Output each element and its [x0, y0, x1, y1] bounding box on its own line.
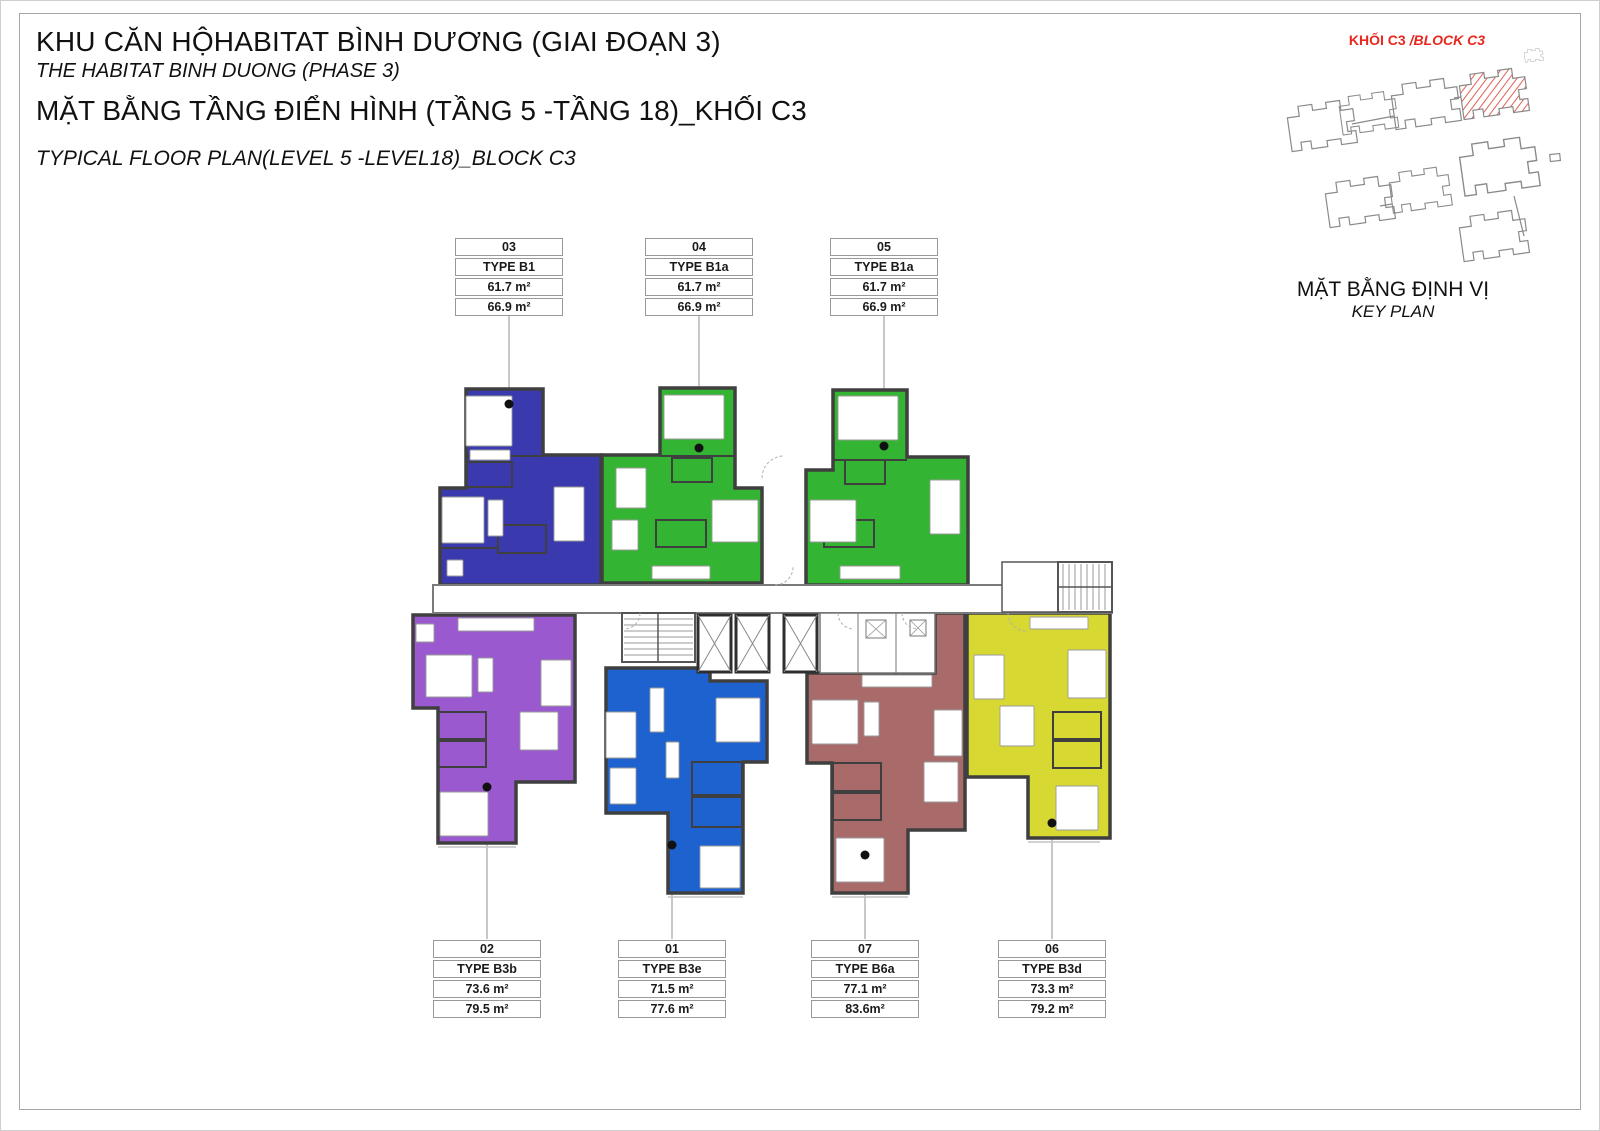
unit-area-gross: 66.9 m²	[830, 298, 938, 316]
unit-area-net: 73.6 m²	[433, 980, 541, 998]
unit-area-net: 77.1 m²	[811, 980, 919, 998]
unit-area-gross: 77.6 m²	[618, 1000, 726, 1018]
unit-area-net: 61.7 m²	[455, 278, 563, 296]
unit-area-net: 71.5 m²	[618, 980, 726, 998]
unit-label-01: 01 TYPE B3e 71.5 m² 77.6 m²	[618, 940, 726, 1018]
unit-number: 07	[811, 940, 919, 958]
unit-type: TYPE B3d	[998, 960, 1106, 978]
keyplan-block-c3-highlight	[1458, 67, 1529, 120]
unit-number: 06	[998, 940, 1106, 958]
unit-label-02: 02 TYPE B3b 73.6 m² 79.5 m²	[433, 940, 541, 1018]
unit-number: 01	[618, 940, 726, 958]
unit-label-05: 05 TYPE B1a 61.7 m² 66.9 m²	[830, 238, 938, 316]
unit-type: TYPE B6a	[811, 960, 919, 978]
unit-area-gross: 79.2 m²	[998, 1000, 1106, 1018]
keyplan-caption-english: KEY PLAN	[1243, 302, 1543, 322]
keyplan-drawing	[1272, 46, 1582, 274]
unit-label-07: 07 TYPE B6a 77.1 m² 83.6m²	[811, 940, 919, 1018]
unit-area-gross: 66.9 m²	[645, 298, 753, 316]
unit-number: 04	[645, 238, 753, 256]
unit-area-net: 73.3 m²	[998, 980, 1106, 998]
unit-label-04: 04 TYPE B1a 61.7 m² 66.9 m²	[645, 238, 753, 316]
unit-type: TYPE B1a	[830, 258, 938, 276]
unit-number: 03	[455, 238, 563, 256]
unit-type: TYPE B3b	[433, 960, 541, 978]
unit-label-03: 03 TYPE B1 61.7 m² 66.9 m²	[455, 238, 563, 316]
unit-area-gross: 79.5 m²	[433, 1000, 541, 1018]
keyplan-caption: MẶT BẰNG ĐỊNH VỊ	[1243, 278, 1543, 302]
service-rooms	[820, 613, 935, 673]
elevator-bank	[698, 615, 817, 672]
balcony-lines	[438, 842, 1100, 897]
unit-type: TYPE B1	[455, 258, 563, 276]
unit-number: 02	[433, 940, 541, 958]
unit-area-net: 61.7 m²	[830, 278, 938, 296]
page: { "page": { "title_vi": "KHU CĂN HỘHABIT…	[0, 0, 1600, 1131]
unit-area-gross: 66.9 m²	[455, 298, 563, 316]
unit-area-net: 61.7 m²	[645, 278, 753, 296]
unit-number: 05	[830, 238, 938, 256]
stair-left	[622, 613, 695, 662]
unit-type: TYPE B3e	[618, 960, 726, 978]
unit-label-06: 06 TYPE B3d 73.3 m² 79.2 m²	[998, 940, 1106, 1018]
unit-type: TYPE B1a	[645, 258, 753, 276]
stair-right	[1002, 562, 1112, 612]
unit-area-gross: 83.6m²	[811, 1000, 919, 1018]
